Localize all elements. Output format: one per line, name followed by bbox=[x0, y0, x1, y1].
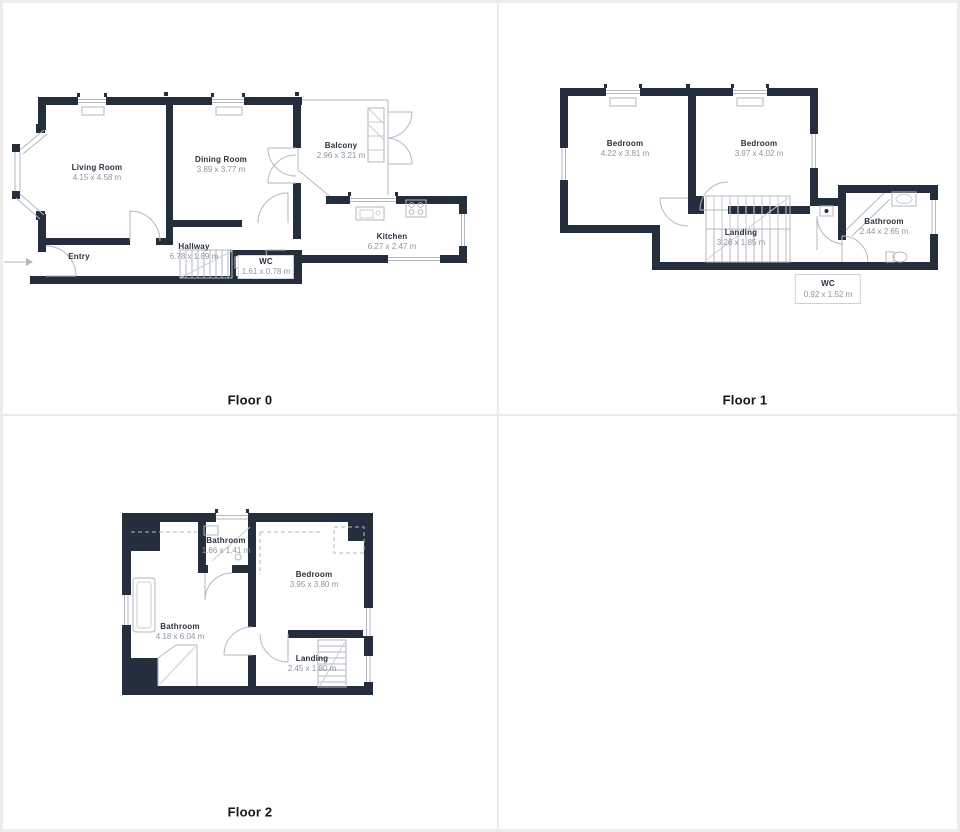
room-name: WC bbox=[804, 278, 852, 289]
bathroom-toilet-icon bbox=[886, 252, 907, 262]
room-label-bathroom-floor1: Bathroom 2.44 x 2.65 m bbox=[860, 217, 908, 237]
room-name: Hallway bbox=[170, 242, 218, 252]
room-dims: 1.66 x 1.41 m bbox=[202, 546, 250, 556]
room-dims: 3.97 x 4.02 m bbox=[735, 149, 783, 159]
bathroom-sink-icon bbox=[892, 192, 916, 206]
room-label-bathroom-small: Bathroom 1.66 x 1.41 m bbox=[202, 536, 250, 556]
room-name: Bathroom bbox=[860, 217, 908, 227]
room-dims: 6.27 x 2.47 m bbox=[368, 242, 416, 252]
floor-0-caption: Floor 0 bbox=[228, 393, 273, 408]
room-name: Landing bbox=[288, 654, 336, 664]
room-label-bedroom-left: Bedroom 4.22 x 3.81 m bbox=[601, 139, 649, 159]
floorplan-page: Living Room 4.15 x 4.58 m Dining Room 3.… bbox=[0, 0, 960, 832]
window-bathroom-right bbox=[929, 200, 939, 234]
room-label-bedroom-floor2: Bedroom 3.95 x 3.80 m bbox=[290, 570, 338, 590]
room-dims: 4.22 x 3.81 m bbox=[601, 149, 649, 159]
sink-icon bbox=[356, 207, 384, 220]
room-dims: 3.26 x 1.85 m bbox=[717, 238, 765, 248]
room-dims: 2.96 x 3.21 m bbox=[317, 151, 365, 161]
room-label-landing-floor1: Landing 3.26 x 1.85 m bbox=[717, 228, 765, 248]
floor-1-caption: Floor 1 bbox=[723, 393, 768, 408]
entry-arrow-icon bbox=[4, 258, 33, 266]
floorplan-drawing bbox=[0, 0, 960, 832]
window-floor2-right-1 bbox=[363, 608, 374, 636]
window-floor2-left bbox=[121, 595, 132, 625]
window-living-top bbox=[77, 93, 107, 115]
window-dining-top bbox=[211, 93, 245, 115]
room-dims: 0.92 x 1.52 m bbox=[804, 289, 852, 300]
room-dims: 3.95 x 3.80 m bbox=[290, 580, 338, 590]
room-label-dining-room: Dining Room 3.89 x 3.77 m bbox=[195, 155, 247, 175]
room-name: Bedroom bbox=[735, 139, 783, 149]
room-label-bedroom-right: Bedroom 3.97 x 4.02 m bbox=[735, 139, 783, 159]
room-label-living-room: Living Room 4.15 x 4.58 m bbox=[72, 163, 123, 183]
room-name: Dining Room bbox=[195, 155, 247, 165]
window-kitchen-right bbox=[458, 214, 468, 246]
room-name: Bedroom bbox=[601, 139, 649, 149]
floor-2-caption: Floor 2 bbox=[228, 805, 273, 820]
room-name: Bathroom bbox=[156, 622, 204, 632]
room-dims: 6.78 x 1.89 m bbox=[170, 252, 218, 262]
room-name: Bedroom bbox=[290, 570, 338, 580]
window-floor2-right-2 bbox=[363, 656, 374, 682]
room-dims: 4.15 x 4.58 m bbox=[72, 173, 123, 183]
room-dims: 2.44 x 2.65 m bbox=[860, 227, 908, 237]
room-name: Bathroom bbox=[202, 536, 250, 546]
room-name: Kitchen bbox=[368, 232, 416, 242]
room-label-wc-floor1: WC 0.92 x 1.52 m bbox=[795, 274, 861, 304]
shower-floor2 bbox=[158, 645, 197, 686]
room-name: WC bbox=[242, 257, 290, 267]
room-label-bathroom-large: Bathroom 4.18 x 6.04 m bbox=[156, 622, 204, 642]
room-label-entry: Entry bbox=[68, 252, 89, 262]
window-left-wall bbox=[559, 148, 569, 180]
window-bedroom-left-top bbox=[604, 84, 642, 106]
room-label-wc-floor0: WC 1.61 x 0.78 m bbox=[238, 255, 294, 279]
room-label-kitchen: Kitchen 6.27 x 2.47 m bbox=[368, 232, 416, 252]
quadrant-divider-horizontal bbox=[0, 414, 960, 416]
window-kitchen-top bbox=[348, 192, 398, 205]
window-kitchen-bottom bbox=[388, 254, 440, 264]
window-bedroom-right-top bbox=[731, 84, 769, 106]
window-floor2-top bbox=[215, 509, 249, 523]
room-label-balcony: Balcony 2.96 x 3.21 m bbox=[317, 141, 365, 161]
room-name: Living Room bbox=[72, 163, 123, 173]
room-name: Balcony bbox=[317, 141, 365, 151]
bay-window bbox=[12, 124, 47, 220]
room-name: Landing bbox=[717, 228, 765, 238]
room-name: Entry bbox=[68, 252, 89, 262]
window-right-wall bbox=[809, 134, 819, 168]
room-dims: 1.61 x 0.78 m bbox=[242, 267, 290, 277]
door-arcs-floor2 bbox=[205, 573, 288, 662]
bathtub-icon bbox=[133, 578, 155, 632]
room-dims: 3.89 x 3.77 m bbox=[195, 165, 247, 175]
quadrant-divider-vertical bbox=[497, 0, 499, 832]
room-dims: 2.45 x 1.80 m bbox=[288, 664, 336, 674]
room-label-landing-floor2: Landing 2.45 x 1.80 m bbox=[288, 654, 336, 674]
wc-toilet-icon bbox=[820, 206, 833, 216]
room-label-hallway: Hallway 6.78 x 1.89 m bbox=[170, 242, 218, 262]
room-dims: 4.18 x 6.04 m bbox=[156, 632, 204, 642]
